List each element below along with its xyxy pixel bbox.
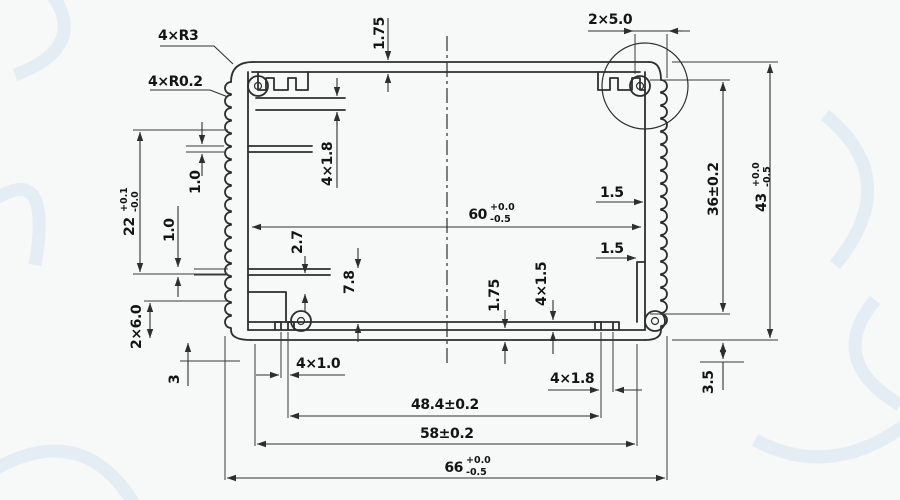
technical-drawing-canvas: 4×R3 4×R0.2 2×5.0 1.75 22 +0.1 -0.0 1.0 … <box>0 0 900 500</box>
label-fin-tip-radius: 4×R0.2 <box>148 74 203 90</box>
watermark <box>0 0 900 500</box>
svg-text:-0.0: -0.0 <box>130 191 141 212</box>
label-right-web-lower: 1.5 <box>600 241 624 257</box>
left-rib-upper <box>248 146 312 152</box>
svg-text:+0.0: +0.0 <box>490 202 515 213</box>
svg-text:66: 66 <box>444 460 463 476</box>
label-bottom-wall-thickness: 1.75 <box>487 279 503 312</box>
svg-text:-0.5: -0.5 <box>466 467 487 478</box>
label-inner-width: 60 +0.0 -0.5 <box>468 202 515 225</box>
pcb-slot-top-left <box>258 72 308 90</box>
svg-text:+0.1: +0.1 <box>119 187 130 212</box>
svg-text:22: 22 <box>122 217 138 236</box>
svg-text:+0.0: +0.0 <box>466 455 491 466</box>
label-bottom-right-offset: 3.5 <box>701 370 717 394</box>
svg-text:+0.0: +0.0 <box>751 162 762 187</box>
label-top-rail-depth: 4×1.8 <box>320 142 336 186</box>
label-bottom-rail-height: 4×1.5 <box>534 262 550 306</box>
extension-lines <box>133 34 778 480</box>
label-left-rib-upper: 1.0 <box>188 170 204 194</box>
profile-outline <box>225 62 667 340</box>
label-screw-boss-span: 48.4±0.2 <box>411 397 479 413</box>
svg-text:43: 43 <box>754 193 770 212</box>
label-left-inner-height: 22 +0.1 -0.0 <box>119 187 141 236</box>
label-bottom-rail-gap-left: 4×1.0 <box>296 356 341 372</box>
right-pocket-step <box>637 262 645 322</box>
drawing-stage: 4×R3 4×R0.2 2×5.0 1.75 22 +0.1 -0.0 1.0 … <box>0 0 900 500</box>
label-corner-radius: 4×R3 <box>158 28 198 44</box>
label-rail-span: 58±0.2 <box>420 426 474 442</box>
label-outer-width: 66 +0.0 -0.5 <box>444 455 491 478</box>
label-bottom-left-offset: 3 <box>167 375 183 384</box>
bottom-rail-right <box>595 322 619 330</box>
svg-text:60: 60 <box>468 207 487 223</box>
svg-text:-0.5: -0.5 <box>490 214 511 225</box>
pcb-slot-top-right <box>598 72 645 90</box>
fin-wall-right <box>645 80 667 340</box>
label-pocket-step: 2.7 <box>290 230 306 254</box>
label-inner-height: 36±0.2 <box>706 162 722 216</box>
left-rib-lower <box>248 269 330 275</box>
label-left-rib-lower: 1.0 <box>162 218 178 242</box>
label-corner-slot-width: 2×5.0 <box>588 12 633 28</box>
screw-bosses <box>248 76 665 331</box>
label-side-slot-height: 2×6.0 <box>129 304 145 349</box>
label-pocket-depth: 7.8 <box>342 270 358 294</box>
label-top-wall-thickness: 1.75 <box>372 17 388 50</box>
corner-top-right <box>649 62 661 80</box>
svg-text:-0.5: -0.5 <box>762 166 773 187</box>
label-bottom-rail-gap-right: 4×1.8 <box>550 371 594 387</box>
dimension-labels: 4×R3 4×R0.2 2×5.0 1.75 22 +0.1 -0.0 1.0 … <box>119 12 773 478</box>
label-right-web-upper: 1.5 <box>600 185 624 201</box>
left-pocket-step <box>248 292 286 322</box>
label-outer-height: 43 +0.0 -0.5 <box>751 162 773 212</box>
